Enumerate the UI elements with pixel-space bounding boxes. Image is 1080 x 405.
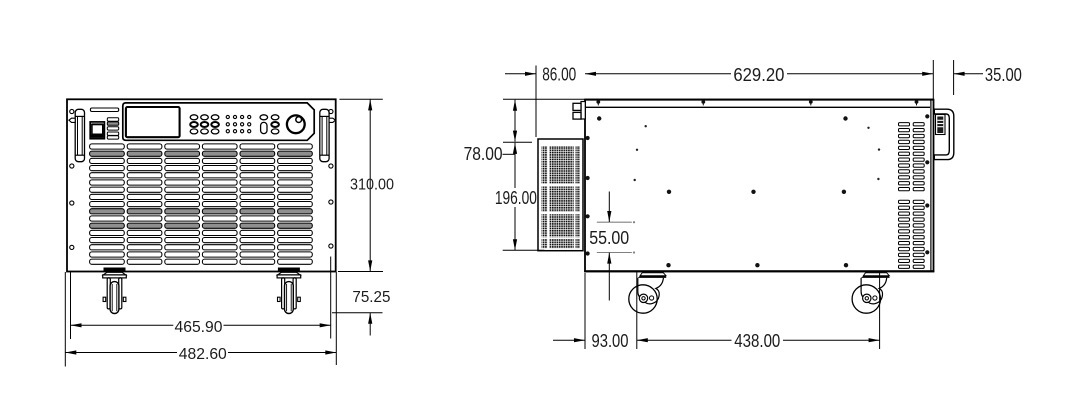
- svg-text:55.00: 55.00: [589, 228, 629, 248]
- svg-text:465.90: 465.90: [175, 319, 223, 336]
- svg-text:482.60: 482.60: [179, 346, 227, 363]
- svg-text:78.00: 78.00: [464, 144, 503, 164]
- svg-text:75.25: 75.25: [352, 289, 390, 306]
- svg-text:629.20: 629.20: [733, 65, 784, 85]
- svg-text:196.00: 196.00: [495, 188, 537, 208]
- svg-text:86.00: 86.00: [542, 64, 576, 84]
- svg-text:438.00: 438.00: [734, 331, 780, 351]
- svg-text:35.00: 35.00: [985, 65, 1022, 85]
- svg-text:93.00: 93.00: [592, 331, 629, 351]
- svg-text:310.00: 310.00: [350, 177, 394, 194]
